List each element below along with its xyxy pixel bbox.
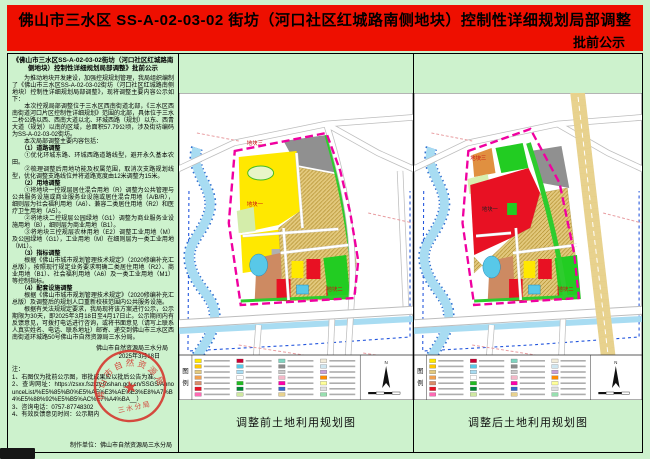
plot2-label: 地块二 xyxy=(326,285,343,293)
plot3-label: 地块三 xyxy=(470,154,487,162)
after-map-svg: 地块三 地块一 地块二 图 例 N xyxy=(414,93,642,400)
text-line: 根据《佛山市城市规划管理技术规定》（2020修编补充汇总版）及调整后的规划人口重… xyxy=(12,293,174,307)
notes-list: 1、右图仅为批前公示图，审批成果应以批后公告为准。2、查询网址：https://… xyxy=(12,375,174,420)
before-map-caption: 调整前土地利用规划图 xyxy=(179,414,413,430)
text-line: 1、右图仅为批前公示图，审批成果应以批后公告为准。 xyxy=(12,375,174,383)
signature-org: 佛山市自然资源局三水分局 xyxy=(12,345,174,353)
planning-notice-page: 佛山市三水区 SS-A-02-03-02 街坊（河口社区红城路南侧地块）控制性详… xyxy=(0,0,650,459)
map-legend: 图 例 N xyxy=(179,355,413,400)
signature-block: 佛山市自然资源局三水分局 2025年3月18日 xyxy=(12,345,174,361)
maker-line: 制作单位：佛山市自然资源局三水分局 xyxy=(12,442,174,450)
before-map: 地块三 地块一 地块二 图 例 N xyxy=(179,93,413,400)
notice-body: 为推动地块开发建设，加强控规规划管理，我局组织编制了《佛山市三水区SS-A-02… xyxy=(12,76,174,342)
watermark-badge xyxy=(0,448,35,459)
svg-text:N: N xyxy=(614,360,617,365)
text-line: （3）指标调整 xyxy=(12,251,174,258)
text-line: ①将地块一控规层居住混合用地（R）调整为公共管理与公共服务设施或商业服务业设施或… xyxy=(12,188,174,216)
scale-bar xyxy=(368,392,400,394)
text-line: 本次局部调整主要内容包括： xyxy=(12,139,174,146)
before-map-panel: 地块三 地块一 地块二 图 例 N xyxy=(179,54,414,452)
signature-date: 2025年3月18日 xyxy=(12,353,174,361)
text-line: 3、咨询电话：0757-87748302 xyxy=(12,405,174,413)
after-map-panel: 地块三 地块一 地块二 图 例 N xyxy=(414,54,642,452)
text-line: （1）道路调整 xyxy=(12,146,174,153)
before-map-svg: 地块三 地块一 地块二 图 例 N xyxy=(179,93,413,400)
text-line: ③将地块三控规层农林用地（E2）调整工业用地（M）及公园绿地（G1），工业用地（… xyxy=(12,230,174,251)
after-map: 地块三 地块一 地块二 图 例 N xyxy=(414,93,642,400)
plot2-label: 地块二 xyxy=(558,285,575,293)
text-line: 根据有关法规规定要求，我局现将该方案进行公示，公示期限为30天，即2025年3月… xyxy=(12,307,174,342)
text-line: （2）用地调整 xyxy=(12,181,174,188)
text-line: ②将地块二控规层公园绿地（G1）调整为商业服务业设施用地（B），细则层为商业用地… xyxy=(12,216,174,230)
legend-title-char1: 图 xyxy=(182,367,188,375)
text-line: 为推动地块开发建设，加强控规规划管理，我局组织编制了《佛山市三水区SS-A-02… xyxy=(12,76,174,104)
notes-block: 注： 1、右图仅为批前公示图，审批成果应以批后公告为准。2、查询网址：https… xyxy=(12,367,174,420)
text-line: 根据《佛山市城市规划管理技术规定》（2020修编补充汇总版），按照现行规定业务要… xyxy=(12,258,174,286)
title-banner: 佛山市三水区 SS-A-02-03-02 街坊（河口社区红城路南侧地块）控制性详… xyxy=(7,5,643,51)
svg-text:N: N xyxy=(384,360,387,365)
text-line: 4、有效反馈意见时间：公示期内 xyxy=(12,412,174,420)
legend-title-char1: 图 xyxy=(417,367,423,375)
text-line: ①优化环城东路、环城西路道路线型，避开永久基本农田。 xyxy=(12,153,174,167)
plot1-label: 地块一 xyxy=(482,205,499,213)
legend-title-char2: 例 xyxy=(417,378,423,387)
page-subtitle: 批前公示 xyxy=(7,32,643,51)
notes-title: 注： xyxy=(12,367,174,375)
text-line: 2、查询网址：https://zsxx.fszrzy.foshan.gov.cn… xyxy=(12,382,174,405)
page-title: 佛山市三水区 SS-A-02-03-02 街坊（河口社区红城路南侧地块）控制性详… xyxy=(7,5,643,30)
content-frame: 《佛山市三水区SS-A-02-03-02街坊（河口社区红城路南侧地块）控制性详细… xyxy=(7,53,643,453)
text-line: （4）配套设施调整 xyxy=(12,286,174,293)
plot1-label: 地块一 xyxy=(247,200,264,208)
notice-text-panel: 《佛山市三水区SS-A-02-03-02街坊（河口社区红城路南侧地块）控制性详细… xyxy=(8,54,179,452)
text-line: ②梳理调整后用地功能及权属范围，取消次支路规划线型，优化调整支路线位并将道路宽度… xyxy=(12,167,174,181)
map-legend: 图 例 N xyxy=(414,355,642,400)
plot3-label: 地块三 xyxy=(247,139,264,147)
notice-heading: 《佛山市三水区SS-A-02-03-02街坊（河口社区红城路南侧地块）控制性详细… xyxy=(12,57,174,73)
text-line: 本次控规局部调整位于三水区西南街道北部，《三水区西南街道河口片区控制性详细规划》… xyxy=(12,104,174,139)
after-map-caption: 调整后土地利用规划图 xyxy=(414,414,642,430)
legend-title-char2: 例 xyxy=(182,378,188,387)
scale-bar xyxy=(598,392,629,394)
